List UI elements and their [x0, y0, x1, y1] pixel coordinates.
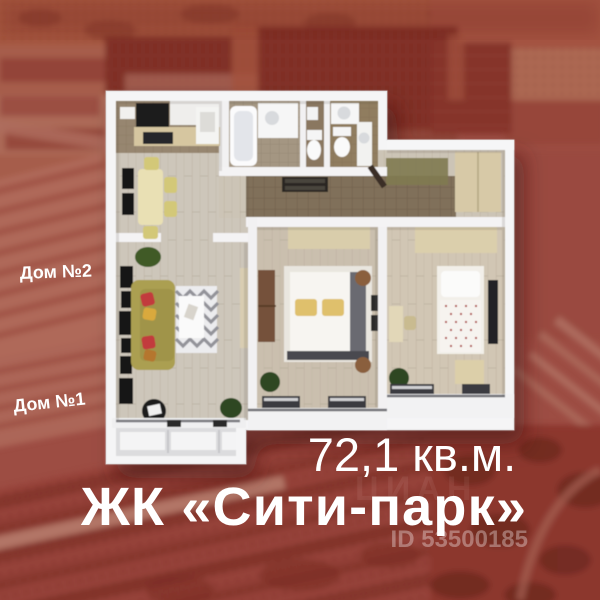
svg-text:72,1 кв.м.: 72,1 кв.м. — [308, 428, 517, 481]
svg-text:ID 53500185: ID 53500185 — [391, 526, 528, 553]
svg-text:Дом №2: Дом №2 — [19, 260, 92, 283]
